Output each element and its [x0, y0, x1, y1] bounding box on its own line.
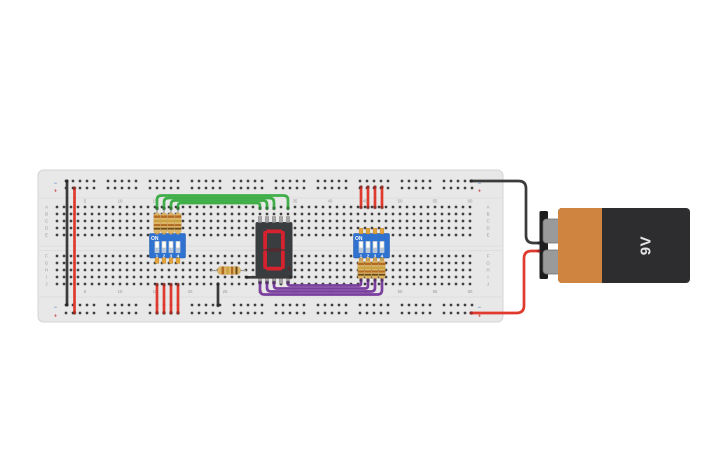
breadboard-hole[interactable]	[189, 255, 192, 258]
breadboard-hole[interactable]	[315, 255, 318, 258]
breadboard-hole[interactable]	[378, 220, 381, 223]
dip-slider[interactable]	[155, 242, 159, 248]
breadboard-hole[interactable]	[112, 234, 115, 237]
breadboard-rail-hole[interactable]	[114, 187, 117, 190]
breadboard-hole[interactable]	[469, 206, 472, 209]
breadboard-rail-hole[interactable]	[135, 312, 138, 315]
breadboard-rail-hole[interactable]	[121, 180, 124, 183]
breadboard-rail-hole[interactable]	[457, 180, 460, 183]
breadboard-rail-hole[interactable]	[429, 180, 432, 183]
breadboard-hole[interactable]	[77, 255, 80, 258]
breadboard-hole[interactable]	[301, 234, 304, 237]
breadboard-hole[interactable]	[287, 213, 290, 216]
breadboard-hole[interactable]	[84, 262, 87, 265]
breadboard-hole[interactable]	[77, 227, 80, 230]
breadboard-hole[interactable]	[315, 269, 318, 272]
breadboard-hole[interactable]	[175, 276, 178, 279]
breadboard-hole[interactable]	[231, 234, 234, 237]
breadboard-rail-hole[interactable]	[338, 304, 341, 307]
breadboard-hole[interactable]	[140, 234, 143, 237]
breadboard-hole[interactable]	[329, 262, 332, 265]
breadboard-hole[interactable]	[364, 213, 367, 216]
breadboard-hole[interactable]	[224, 255, 227, 258]
breadboard-rail-hole[interactable]	[373, 180, 376, 183]
breadboard-hole[interactable]	[378, 213, 381, 216]
breadboard-rail-hole[interactable]	[191, 180, 194, 183]
breadboard-hole[interactable]	[126, 206, 129, 209]
breadboard-hole[interactable]	[413, 269, 416, 272]
breadboard-hole[interactable]	[385, 206, 388, 209]
breadboard-rail-hole[interactable]	[282, 312, 285, 315]
breadboard-hole[interactable]	[371, 213, 374, 216]
breadboard-hole[interactable]	[469, 283, 472, 286]
breadboard-hole[interactable]	[189, 283, 192, 286]
breadboard-hole[interactable]	[56, 283, 59, 286]
breadboard-hole[interactable]	[217, 262, 220, 265]
breadboard-hole[interactable]	[238, 276, 241, 279]
breadboard-hole[interactable]	[413, 283, 416, 286]
breadboard-hole[interactable]	[63, 220, 66, 223]
breadboard-hole[interactable]	[462, 213, 465, 216]
breadboard-hole[interactable]	[434, 255, 437, 258]
breadboard-rail-hole[interactable]	[303, 187, 306, 190]
breadboard-hole[interactable]	[448, 206, 451, 209]
breadboard-hole[interactable]	[224, 220, 227, 223]
breadboard-hole[interactable]	[84, 220, 87, 223]
breadboard-hole[interactable]	[399, 220, 402, 223]
breadboard-hole[interactable]	[294, 227, 297, 230]
breadboard-hole[interactable]	[399, 283, 402, 286]
breadboard-hole[interactable]	[217, 227, 220, 230]
breadboard-rail-hole[interactable]	[331, 180, 334, 183]
breadboard-hole[interactable]	[140, 276, 143, 279]
breadboard-hole[interactable]	[392, 262, 395, 265]
breadboard-hole[interactable]	[98, 206, 101, 209]
breadboard-rail-hole[interactable]	[338, 187, 341, 190]
breadboard-rail-hole[interactable]	[254, 312, 257, 315]
breadboard-hole[interactable]	[259, 213, 262, 216]
breadboard-hole[interactable]	[308, 220, 311, 223]
breadboard-hole[interactable]	[168, 269, 171, 272]
breadboard-hole[interactable]	[56, 269, 59, 272]
breadboard-hole[interactable]	[434, 213, 437, 216]
breadboard-rail-hole[interactable]	[422, 187, 425, 190]
breadboard-hole[interactable]	[133, 220, 136, 223]
breadboard-hole[interactable]	[357, 220, 360, 223]
breadboard-hole[interactable]	[133, 227, 136, 230]
breadboard-hole[interactable]	[182, 283, 185, 286]
breadboard-rail-hole[interactable]	[282, 187, 285, 190]
breadboard-hole[interactable]	[350, 206, 353, 209]
breadboard-hole[interactable]	[98, 276, 101, 279]
breadboard-hole[interactable]	[245, 227, 248, 230]
breadboard-hole[interactable]	[427, 213, 430, 216]
breadboard-hole[interactable]	[455, 269, 458, 272]
breadboard-rail-hole[interactable]	[324, 304, 327, 307]
breadboard-hole[interactable]	[420, 283, 423, 286]
breadboard-hole[interactable]	[203, 276, 206, 279]
breadboard-hole[interactable]	[147, 234, 150, 237]
breadboard-rail-hole[interactable]	[156, 180, 159, 183]
breadboard-hole[interactable]	[385, 213, 388, 216]
breadboard-hole[interactable]	[119, 206, 122, 209]
breadboard-hole[interactable]	[105, 206, 108, 209]
breadboard-hole[interactable]	[427, 283, 430, 286]
breadboard-rail-hole[interactable]	[443, 304, 446, 307]
breadboard-hole[interactable]	[413, 227, 416, 230]
breadboard-rail-hole[interactable]	[450, 312, 453, 315]
breadboard-hole[interactable]	[462, 255, 465, 258]
breadboard-rail-hole[interactable]	[387, 304, 390, 307]
breadboard-hole[interactable]	[112, 227, 115, 230]
breadboard-rail-hole[interactable]	[338, 180, 341, 183]
breadboard-rail-hole[interactable]	[387, 180, 390, 183]
breadboard-rail-hole[interactable]	[254, 304, 257, 307]
breadboard-hole[interactable]	[329, 276, 332, 279]
breadboard-hole[interactable]	[70, 234, 73, 237]
breadboard-hole[interactable]	[203, 262, 206, 265]
breadboard-hole[interactable]	[217, 220, 220, 223]
breadboard-hole[interactable]	[126, 234, 129, 237]
breadboard-hole[interactable]	[392, 234, 395, 237]
breadboard-hole[interactable]	[294, 269, 297, 272]
breadboard-rail-hole[interactable]	[373, 312, 376, 315]
breadboard-hole[interactable]	[329, 255, 332, 258]
breadboard-hole[interactable]	[350, 234, 353, 237]
breadboard-rail-hole[interactable]	[247, 304, 250, 307]
breadboard-hole[interactable]	[98, 220, 101, 223]
breadboard-rail-hole[interactable]	[128, 187, 131, 190]
breadboard-hole[interactable]	[441, 206, 444, 209]
breadboard-hole[interactable]	[448, 269, 451, 272]
breadboard-hole[interactable]	[196, 262, 199, 265]
breadboard-hole[interactable]	[315, 206, 318, 209]
breadboard-hole[interactable]	[63, 227, 66, 230]
breadboard-hole[interactable]	[147, 255, 150, 258]
breadboard-hole[interactable]	[434, 227, 437, 230]
breadboard-hole[interactable]	[84, 255, 87, 258]
breadboard-hole[interactable]	[322, 227, 325, 230]
breadboard-hole[interactable]	[126, 262, 129, 265]
breadboard-hole[interactable]	[189, 206, 192, 209]
breadboard-hole[interactable]	[140, 206, 143, 209]
dip-slider[interactable]	[162, 242, 166, 248]
breadboard-hole[interactable]	[147, 283, 150, 286]
breadboard-hole[interactable]	[448, 276, 451, 279]
breadboard-rail-hole[interactable]	[198, 304, 201, 307]
breadboard-hole[interactable]	[245, 262, 248, 265]
breadboard-rail-hole[interactable]	[429, 187, 432, 190]
breadboard-hole[interactable]	[105, 220, 108, 223]
breadboard-hole[interactable]	[77, 276, 80, 279]
breadboard-hole[interactable]	[70, 262, 73, 265]
breadboard-rail-hole[interactable]	[345, 187, 348, 190]
breadboard-rail-hole[interactable]	[233, 312, 236, 315]
breadboard-hole[interactable]	[238, 227, 241, 230]
breadboard-rail-hole[interactable]	[275, 304, 278, 307]
breadboard-hole[interactable]	[112, 269, 115, 272]
breadboard-hole[interactable]	[245, 255, 248, 258]
breadboard-hole[interactable]	[350, 213, 353, 216]
breadboard-hole[interactable]	[413, 262, 416, 265]
breadboard-hole[interactable]	[392, 213, 395, 216]
breadboard-hole[interactable]	[322, 206, 325, 209]
breadboard-hole[interactable]	[315, 213, 318, 216]
breadboard-rail-hole[interactable]	[191, 187, 194, 190]
breadboard-hole[interactable]	[399, 206, 402, 209]
breadboard-hole[interactable]	[413, 255, 416, 258]
breadboard-rail-hole[interactable]	[149, 180, 152, 183]
breadboard-hole[interactable]	[91, 234, 94, 237]
breadboard-hole[interactable]	[189, 269, 192, 272]
breadboard-rail-hole[interactable]	[345, 312, 348, 315]
breadboard-hole[interactable]	[343, 213, 346, 216]
breadboard-rail-hole[interactable]	[464, 304, 467, 307]
breadboard-hole[interactable]	[441, 255, 444, 258]
breadboard-rail-hole[interactable]	[443, 312, 446, 315]
breadboard-rail-hole[interactable]	[275, 180, 278, 183]
breadboard-hole[interactable]	[224, 262, 227, 265]
breadboard-hole[interactable]	[441, 220, 444, 223]
breadboard-rail-hole[interactable]	[254, 180, 257, 183]
breadboard-hole[interactable]	[231, 255, 234, 258]
breadboard-hole[interactable]	[399, 234, 402, 237]
breadboard-rail-hole[interactable]	[72, 180, 75, 183]
breadboard-hole[interactable]	[203, 227, 206, 230]
breadboard-rail-hole[interactable]	[317, 180, 320, 183]
breadboard-rail-hole[interactable]	[261, 180, 264, 183]
breadboard-hole[interactable]	[343, 234, 346, 237]
breadboard-hole[interactable]	[462, 227, 465, 230]
breadboard-hole[interactable]	[203, 213, 206, 216]
breadboard-hole[interactable]	[217, 276, 220, 279]
breadboard-hole[interactable]	[133, 234, 136, 237]
breadboard-rail-hole[interactable]	[93, 180, 96, 183]
breadboard-rail-hole[interactable]	[240, 180, 243, 183]
breadboard-hole[interactable]	[203, 220, 206, 223]
breadboard-hole[interactable]	[182, 213, 185, 216]
breadboard-hole[interactable]	[91, 220, 94, 223]
breadboard-hole[interactable]	[203, 206, 206, 209]
breadboard-hole[interactable]	[406, 234, 409, 237]
breadboard-rail-hole[interactable]	[408, 180, 411, 183]
breadboard-hole[interactable]	[147, 206, 150, 209]
breadboard-hole[interactable]	[329, 213, 332, 216]
breadboard-hole[interactable]	[238, 234, 241, 237]
breadboard-hole[interactable]	[98, 269, 101, 272]
breadboard-hole[interactable]	[336, 234, 339, 237]
breadboard-hole[interactable]	[231, 227, 234, 230]
breadboard-rail-hole[interactable]	[247, 187, 250, 190]
breadboard-rail-hole[interactable]	[373, 304, 376, 307]
breadboard-hole[interactable]	[252, 206, 255, 209]
breadboard-hole[interactable]	[385, 227, 388, 230]
breadboard-hole[interactable]	[70, 206, 73, 209]
breadboard-hole[interactable]	[385, 220, 388, 223]
breadboard-hole[interactable]	[119, 276, 122, 279]
breadboard-hole[interactable]	[56, 220, 59, 223]
breadboard-hole[interactable]	[301, 213, 304, 216]
breadboard-hole[interactable]	[273, 213, 276, 216]
breadboard-rail-hole[interactable]	[198, 312, 201, 315]
breadboard-hole[interactable]	[56, 213, 59, 216]
breadboard-hole[interactable]	[413, 234, 416, 237]
breadboard-hole[interactable]	[308, 213, 311, 216]
breadboard-rail-hole[interactable]	[401, 180, 404, 183]
breadboard-hole[interactable]	[182, 206, 185, 209]
breadboard-rail-hole[interactable]	[79, 304, 82, 307]
breadboard-hole[interactable]	[91, 276, 94, 279]
breadboard-hole[interactable]	[245, 283, 248, 286]
breadboard-rail-hole[interactable]	[331, 187, 334, 190]
breadboard-hole[interactable]	[203, 234, 206, 237]
breadboard-hole[interactable]	[455, 255, 458, 258]
breadboard-hole[interactable]	[448, 283, 451, 286]
breadboard-hole[interactable]	[336, 269, 339, 272]
breadboard-hole[interactable]	[77, 234, 80, 237]
breadboard-hole[interactable]	[119, 220, 122, 223]
breadboard-rail-hole[interactable]	[282, 180, 285, 183]
breadboard-hole[interactable]	[357, 206, 360, 209]
breadboard-hole[interactable]	[343, 220, 346, 223]
breadboard-hole[interactable]	[322, 262, 325, 265]
breadboard-hole[interactable]	[203, 255, 206, 258]
breadboard-hole[interactable]	[392, 276, 395, 279]
breadboard-hole[interactable]	[371, 206, 374, 209]
breadboard-rail-hole[interactable]	[443, 180, 446, 183]
breadboard-hole[interactable]	[84, 227, 87, 230]
breadboard-hole[interactable]	[91, 227, 94, 230]
breadboard-hole[interactable]	[413, 220, 416, 223]
breadboard-hole[interactable]	[210, 262, 213, 265]
breadboard-hole[interactable]	[70, 276, 73, 279]
dip-switch-right[interactable]: ON 1234	[354, 228, 390, 263]
breadboard-hole[interactable]	[308, 234, 311, 237]
breadboard-hole[interactable]	[350, 276, 353, 279]
breadboard-hole[interactable]	[133, 269, 136, 272]
breadboard-hole[interactable]	[238, 206, 241, 209]
breadboard-rail-hole[interactable]	[149, 304, 152, 307]
resistor[interactable]	[358, 258, 364, 281]
breadboard-hole[interactable]	[350, 255, 353, 258]
breadboard-rail-hole[interactable]	[163, 180, 166, 183]
breadboard-rail-hole[interactable]	[107, 180, 110, 183]
breadboard-hole[interactable]	[196, 234, 199, 237]
breadboard-hole[interactable]	[364, 220, 367, 223]
breadboard-hole[interactable]	[315, 276, 318, 279]
breadboard-rail-hole[interactable]	[296, 304, 299, 307]
breadboard-hole[interactable]	[224, 276, 227, 279]
breadboard-hole[interactable]	[217, 255, 220, 258]
breadboard-hole[interactable]	[350, 269, 353, 272]
breadboard-rail-hole[interactable]	[408, 187, 411, 190]
breadboard-hole[interactable]	[196, 213, 199, 216]
breadboard-hole[interactable]	[336, 255, 339, 258]
breadboard-rail-hole[interactable]	[212, 304, 215, 307]
breadboard-hole[interactable]	[434, 234, 437, 237]
breadboard-hole[interactable]	[462, 234, 465, 237]
breadboard-hole[interactable]	[266, 213, 269, 216]
breadboard-rail-hole[interactable]	[128, 312, 131, 315]
breadboard-hole[interactable]	[217, 206, 220, 209]
breadboard-rail-hole[interactable]	[303, 312, 306, 315]
breadboard-hole[interactable]	[462, 269, 465, 272]
breadboard-hole[interactable]	[182, 276, 185, 279]
breadboard-hole[interactable]	[126, 255, 129, 258]
breadboard-rail-hole[interactable]	[107, 187, 110, 190]
breadboard-rail-hole[interactable]	[170, 187, 173, 190]
breadboard-hole[interactable]	[126, 269, 129, 272]
breadboard-hole[interactable]	[455, 283, 458, 286]
breadboard-hole[interactable]	[378, 283, 381, 286]
breadboard-hole[interactable]	[168, 276, 171, 279]
breadboard-rail-hole[interactable]	[212, 312, 215, 315]
breadboard-hole[interactable]	[469, 220, 472, 223]
breadboard-rail-hole[interactable]	[366, 180, 369, 183]
breadboard-hole[interactable]	[413, 213, 416, 216]
breadboard-hole[interactable]	[413, 276, 416, 279]
breadboard-rail-hole[interactable]	[191, 304, 194, 307]
breadboard-hole[interactable]	[469, 234, 472, 237]
breadboard-hole[interactable]	[98, 255, 101, 258]
breadboard-hole[interactable]	[189, 262, 192, 265]
breadboard-hole[interactable]	[126, 213, 129, 216]
breadboard-hole[interactable]	[77, 269, 80, 272]
breadboard-hole[interactable]	[119, 227, 122, 230]
breadboard-rail-hole[interactable]	[198, 180, 201, 183]
breadboard-hole[interactable]	[98, 234, 101, 237]
breadboard-rail-hole[interactable]	[345, 180, 348, 183]
breadboard-rail-hole[interactable]	[345, 304, 348, 307]
breadboard-rail-hole[interactable]	[247, 312, 250, 315]
breadboard-hole[interactable]	[301, 255, 304, 258]
breadboard-hole[interactable]	[343, 262, 346, 265]
breadboard-rail-hole[interactable]	[387, 312, 390, 315]
breadboard-hole[interactable]	[420, 213, 423, 216]
breadboard-hole[interactable]	[126, 276, 129, 279]
breadboard-hole[interactable]	[462, 276, 465, 279]
breadboard-hole[interactable]	[378, 206, 381, 209]
breadboard-rail-hole[interactable]	[93, 304, 96, 307]
breadboard-rail-hole[interactable]	[219, 180, 222, 183]
breadboard-hole[interactable]	[210, 283, 213, 286]
breadboard-rail-hole[interactable]	[359, 180, 362, 183]
breadboard-hole[interactable]	[420, 206, 423, 209]
breadboard-hole[interactable]	[294, 255, 297, 258]
breadboard-hole[interactable]	[140, 227, 143, 230]
breadboard-hole[interactable]	[238, 220, 241, 223]
breadboard-hole[interactable]	[210, 276, 213, 279]
breadboard-rail-hole[interactable]	[86, 180, 89, 183]
breadboard-hole[interactable]	[98, 283, 101, 286]
breadboard-hole[interactable]	[91, 255, 94, 258]
breadboard-rail-hole[interactable]	[205, 312, 208, 315]
breadboard-hole[interactable]	[126, 227, 129, 230]
breadboard-rail-hole[interactable]	[240, 304, 243, 307]
breadboard-hole[interactable]	[140, 255, 143, 258]
breadboard-rail-hole[interactable]	[429, 304, 432, 307]
breadboard-hole[interactable]	[406, 206, 409, 209]
breadboard-hole[interactable]	[427, 269, 430, 272]
breadboard-hole[interactable]	[196, 269, 199, 272]
breadboard-hole[interactable]	[448, 234, 451, 237]
breadboard-hole[interactable]	[308, 227, 311, 230]
breadboard-hole[interactable]	[245, 213, 248, 216]
breadboard-hole[interactable]	[329, 227, 332, 230]
breadboard-hole[interactable]	[217, 213, 220, 216]
breadboard-hole[interactable]	[91, 206, 94, 209]
breadboard-hole[interactable]	[77, 283, 80, 286]
